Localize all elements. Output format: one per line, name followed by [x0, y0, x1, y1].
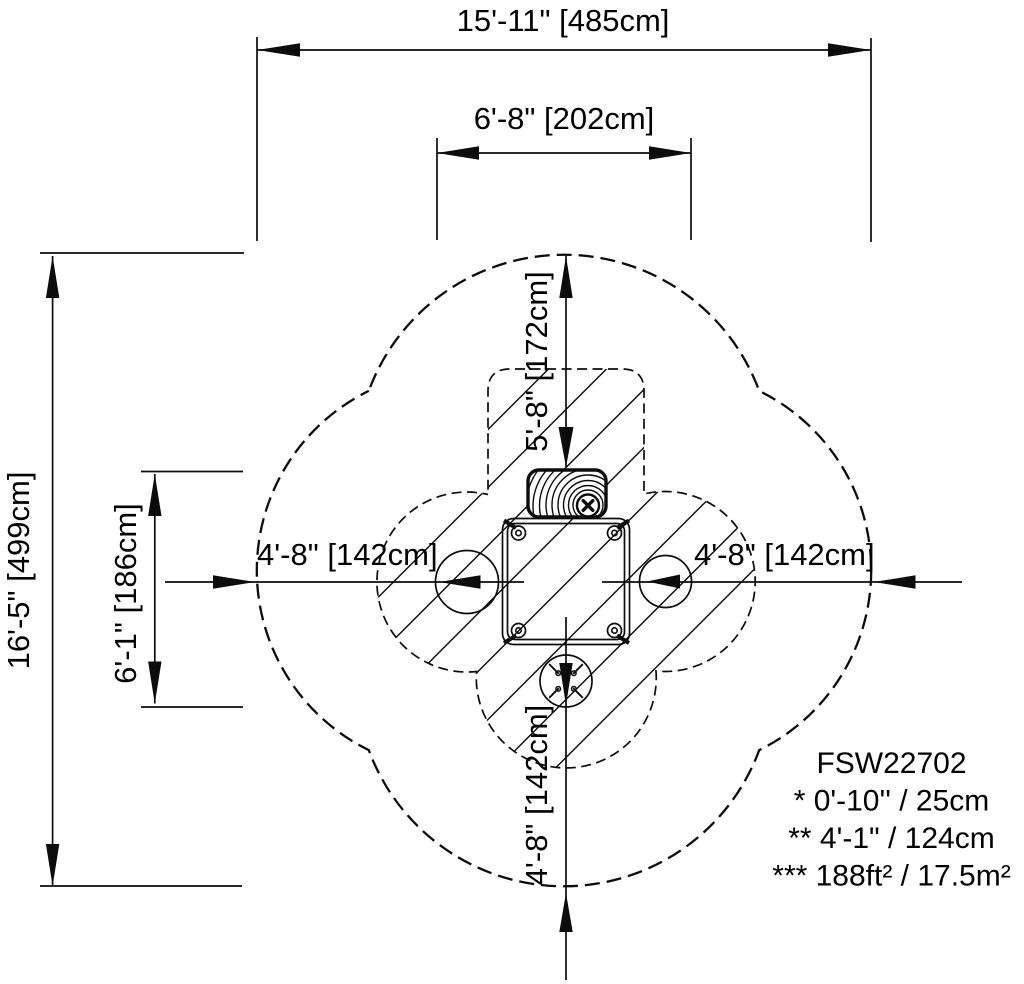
svg-text:4'-8" [142cm]: 4'-8" [142cm]: [257, 537, 438, 572]
svg-text:4'-8" [142cm]: 4'-8" [142cm]: [519, 705, 554, 886]
svg-text:6'-1" [186cm]: 6'-1" [186cm]: [108, 503, 143, 684]
svg-text:15'-11" [485cm]: 15'-11" [485cm]: [457, 3, 670, 38]
svg-text:*** 188ft² / 17.5m²: *** 188ft² / 17.5m²: [772, 860, 1010, 893]
svg-text:6'-8" [202cm]: 6'-8" [202cm]: [474, 101, 655, 136]
svg-text:** 4'-1" / 124cm: ** 4'-1" / 124cm: [788, 822, 994, 855]
svg-text:4'-8" [142cm]: 4'-8" [142cm]: [694, 537, 875, 572]
svg-text:FSW22702: FSW22702: [816, 747, 966, 780]
svg-text:5'-8" [172cm]: 5'-8" [172cm]: [519, 271, 554, 452]
svg-text:16'-5" [499cm]: 16'-5" [499cm]: [1, 472, 36, 670]
svg-text:* 0'-10'' / 25cm: * 0'-10'' / 25cm: [794, 785, 990, 818]
